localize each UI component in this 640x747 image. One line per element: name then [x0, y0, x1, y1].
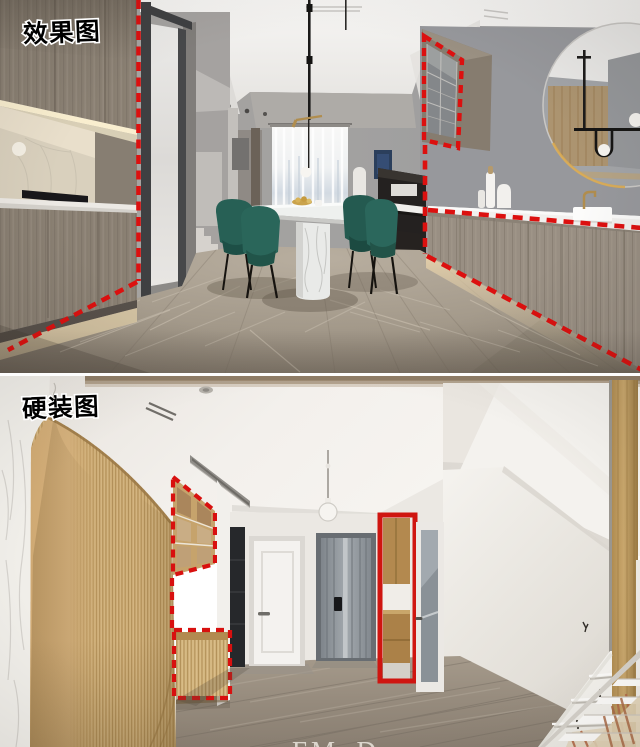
- svg-text:硬装图: 硬装图: [22, 393, 101, 424]
- svg-text:FMvD: FMvD: [292, 736, 380, 747]
- svg-text:效果图: 效果图: [23, 16, 102, 48]
